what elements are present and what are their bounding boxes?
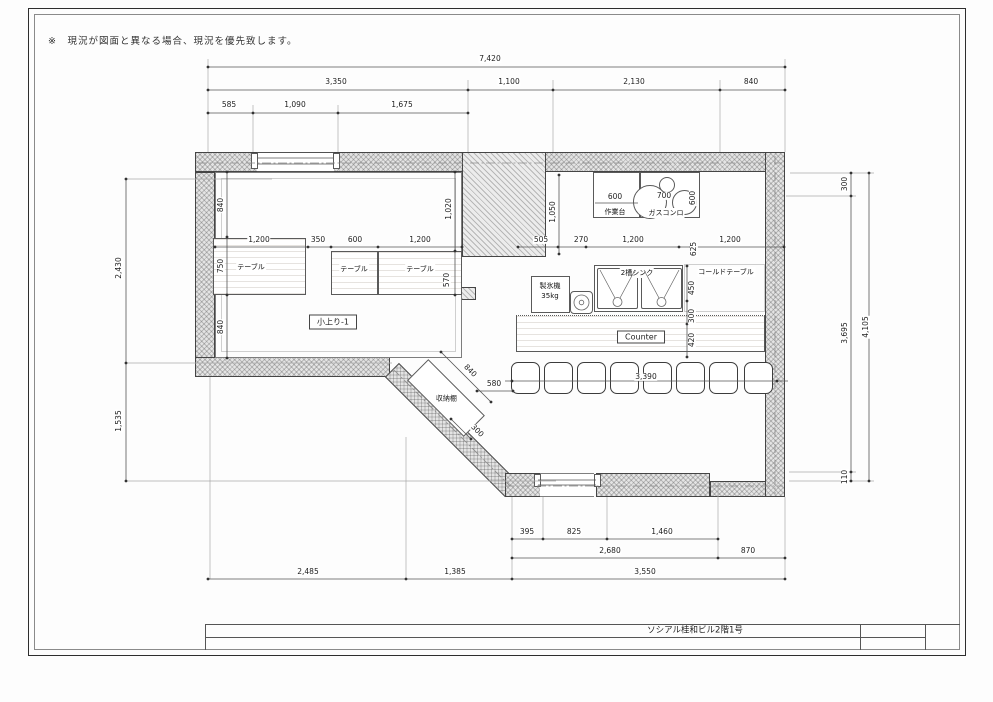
dim-top2-1: 3,350 (324, 78, 347, 86)
dim-right-3695: 3,695 (841, 321, 849, 344)
titleblock-divider-1 (205, 624, 206, 650)
wall-room-bottom (195, 357, 390, 377)
dim-mid-270: 270 (573, 236, 589, 244)
dim-top3-2: 1,090 (283, 101, 306, 109)
dim-bottom1-2: 825 (566, 528, 582, 536)
round-appliance (570, 291, 593, 314)
entrance-jamb-left (534, 474, 541, 487)
dim-room-1020: 1,020 (445, 197, 453, 220)
sink-label: 2槽シンク (620, 268, 654, 278)
titleblock-divider-3 (925, 624, 926, 650)
wall-bottom-mid (596, 473, 710, 497)
dim-bottom1-3: 1,460 (650, 528, 673, 536)
entrance-opening (540, 473, 594, 497)
stool-7 (709, 362, 738, 394)
dim-table-350: 350 (310, 236, 326, 244)
dim-bottom2-1: 2,680 (598, 547, 621, 555)
dim-table-600: 600 (347, 236, 363, 244)
dim-mid-1200b: 1,200 (718, 236, 741, 244)
dim-room-840b: 840 (217, 319, 225, 335)
dim-worktable-600: 600 (607, 193, 623, 201)
window-jamb-right (333, 153, 340, 169)
titleblock-divider-2 (860, 624, 861, 650)
dim-kitchen-1050: 1,050 (549, 200, 557, 223)
dim-bottom2-2: 870 (740, 547, 756, 555)
disclaimer-note: ※ 現況が図面と異なる場合、現況を優先致します。 (48, 33, 298, 47)
dim-table-1200a: 1,200 (247, 236, 270, 244)
dim-mid-625: 625 (690, 241, 698, 257)
wall-right (765, 152, 785, 497)
titleblock-line-mid (205, 637, 925, 638)
stool-3 (577, 362, 606, 394)
dim-room-840a: 840 (217, 197, 225, 213)
titleblock-line-top (205, 624, 960, 625)
dim-left-2: 1,535 (115, 409, 123, 432)
dim-bottom3-3: 3,550 (633, 568, 656, 576)
stool-2 (544, 362, 573, 394)
dim-top3-1: 585 (221, 101, 237, 109)
dim-room-750: 750 (217, 258, 225, 274)
storage-shelf-label: 収納棚 (436, 393, 457, 403)
stool-8 (744, 362, 773, 394)
dim-top3-3: 1,675 (390, 101, 413, 109)
dim-front-420: 420 (688, 332, 696, 348)
dim-right-4105: 4,105 (862, 315, 870, 338)
dim-right-110: 110 (841, 469, 849, 485)
dim-stools-3390: 3,390 (634, 373, 657, 381)
dim-right-300: 300 (841, 176, 849, 192)
cold-table-label: コールドテーブル (697, 267, 755, 277)
dim-bottom1-1: 395 (519, 528, 535, 536)
dim-left-1: 2,430 (115, 256, 123, 279)
window-opening (257, 153, 334, 171)
dim-bottom3-2: 1,385 (443, 568, 466, 576)
dim-stove-700: 700 (656, 192, 672, 200)
dim-top2-4: 840 (743, 78, 759, 86)
worktable-label: 作業台 (604, 207, 627, 217)
gas-stove-label: ガスコンロ (648, 208, 685, 218)
dim-overall-width: 7,420 (478, 55, 501, 63)
table-2-label: テーブル (339, 264, 369, 274)
dim-mid-505: 505 (533, 236, 549, 244)
dim-front-300: 300 (688, 308, 696, 324)
dim-table-1200b: 1,200 (408, 236, 431, 244)
floor-plan-sheet: ※ 現況が図面と異なる場合、現況を優先致します。 テーブル テーブル テーブル … (0, 0, 993, 702)
ice-maker-capacity: 35kg (540, 292, 559, 300)
entrance-jamb-right (594, 474, 601, 487)
dim-bottom3-1: 2,485 (296, 568, 319, 576)
dim-room-570: 570 (443, 272, 451, 288)
column-post (461, 287, 476, 300)
dim-stove-600: 600 (689, 190, 697, 206)
dim-top2-2: 1,100 (497, 78, 520, 86)
dim-front-450: 450 (688, 280, 696, 296)
ice-maker-label: 製氷機 (539, 281, 562, 291)
window-jamb-left (251, 153, 258, 169)
table-1-label: テーブル (236, 262, 266, 272)
stool-1 (511, 362, 540, 394)
dim-storage-580: 580 (486, 380, 502, 388)
table-3-label: テーブル (405, 264, 435, 274)
counter-label: Counter (617, 331, 665, 344)
stool-6 (676, 362, 705, 394)
titleblock-building-name: ソシアル桂和ビル2階1号 (646, 626, 744, 635)
dim-top2-3: 2,130 (622, 78, 645, 86)
sheet-border-inner (34, 14, 960, 650)
wall-left (195, 172, 215, 377)
dim-mid-1200a: 1,200 (621, 236, 644, 244)
room-kogari-label: 小上り-1 (309, 315, 357, 330)
